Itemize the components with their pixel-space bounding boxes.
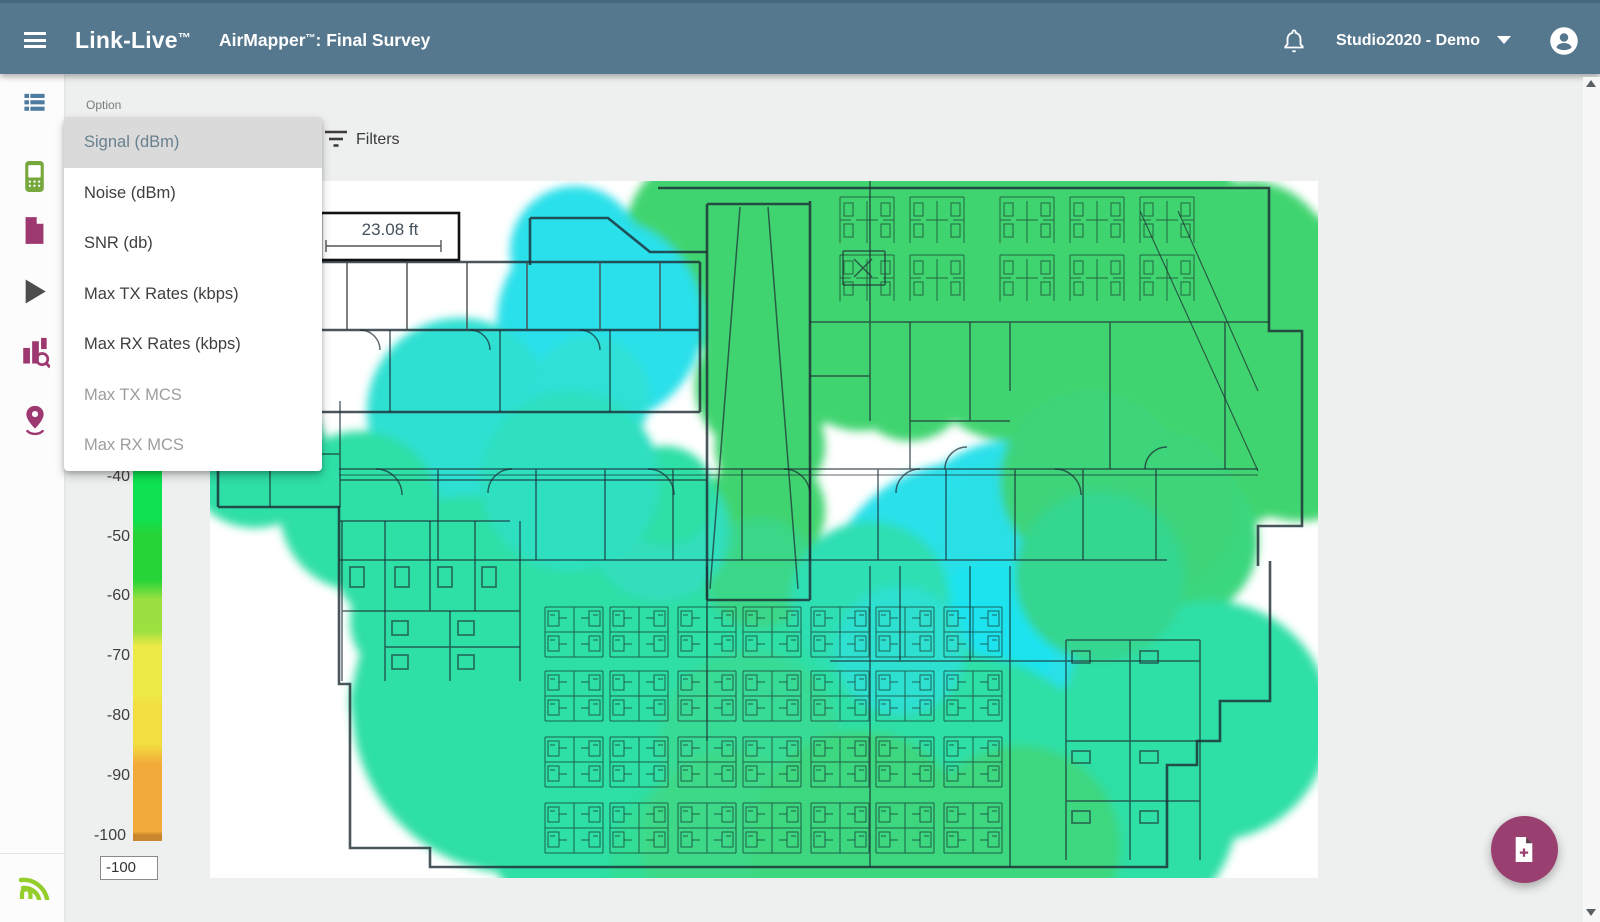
svg-text:23.08 ft: 23.08 ft (362, 220, 419, 239)
